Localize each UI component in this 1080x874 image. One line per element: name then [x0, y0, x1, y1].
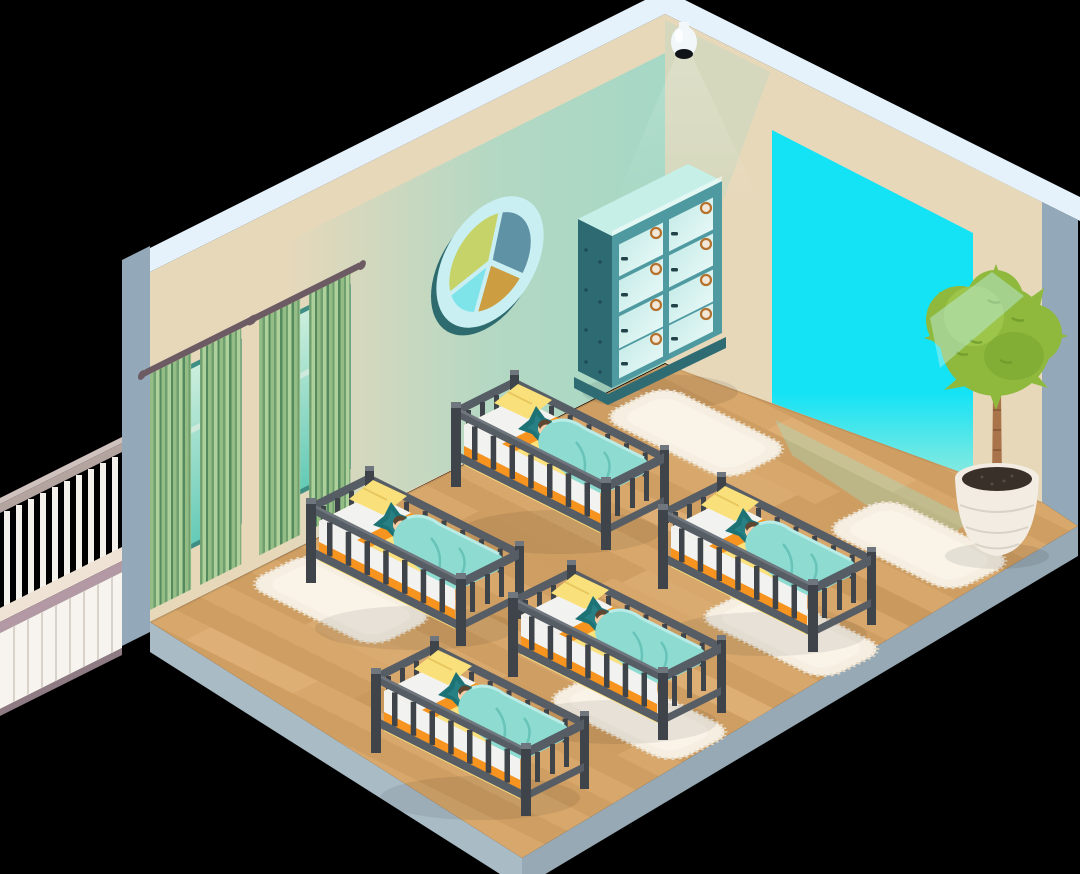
nursery-illustration — [0, 0, 1080, 874]
isometric-room — [0, 0, 1080, 874]
wall-cut-edge — [1042, 202, 1078, 526]
balcony-railing — [0, 437, 122, 716]
camera-lens — [675, 49, 693, 59]
wall-cut-edge — [122, 246, 150, 646]
locker-side — [578, 219, 612, 388]
